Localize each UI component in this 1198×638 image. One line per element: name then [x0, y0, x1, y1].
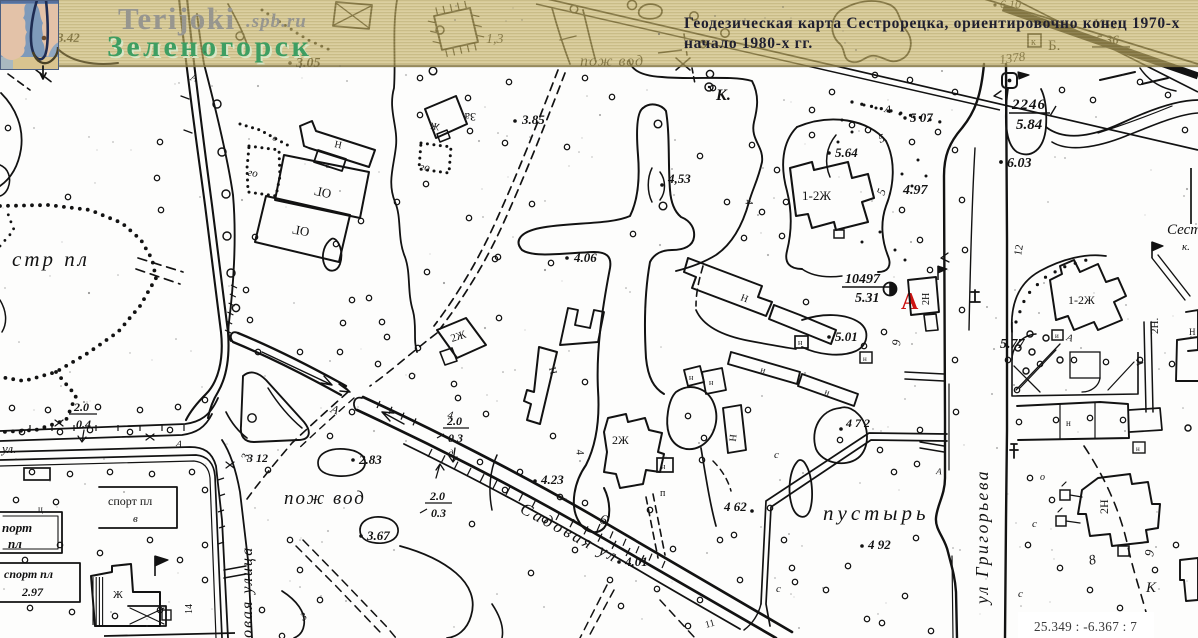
svg-text:2.0: 2.0	[446, 414, 462, 428]
svg-text:к: к	[326, 161, 330, 170]
svg-text:За: За	[464, 110, 476, 124]
svg-text:Зеленогорск: Зеленогорск	[107, 30, 312, 63]
svg-text:Н: Н	[1189, 327, 1196, 337]
svg-text:2.0: 2.0	[429, 489, 445, 503]
svg-text:4.97: 4.97	[902, 183, 929, 198]
svg-text:2Н: 2Н	[921, 293, 932, 305]
svg-text:н: н	[709, 378, 714, 387]
svg-text:н: н	[661, 462, 666, 471]
svg-text:5.77: 5.77	[1000, 337, 1026, 352]
svg-text:Сест: Сест	[1167, 222, 1198, 238]
svg-text:Геодезическая карта Сестрорецк: Геодезическая карта Сестрорецка, ориенти…	[684, 15, 1180, 32]
svg-text:н: н	[1066, 418, 1071, 428]
svg-text:ОГ: ОГ	[291, 222, 311, 240]
svg-text:1-2Ж: 1-2Ж	[802, 188, 831, 203]
svg-text:начало 1980-х гг.: начало 1980-х гг.	[684, 35, 813, 52]
svg-text:пустырь: пустырь	[823, 501, 930, 525]
svg-text:н: н	[863, 355, 867, 363]
svg-text:4 7 2: 4 7 2	[845, 416, 870, 430]
svg-text:4.06: 4.06	[573, 250, 597, 265]
svg-text:4.23: 4.23	[540, 472, 564, 487]
svg-text:и: и	[1055, 332, 1059, 340]
svg-text:2246: 2246	[1011, 97, 1046, 113]
svg-text:10497: 10497	[845, 272, 881, 287]
svg-text:пож вод: пож вод	[284, 488, 366, 509]
svg-text:4 92: 4 92	[867, 537, 891, 552]
svg-text:с: с	[774, 449, 779, 461]
svg-text:4,53: 4,53	[667, 171, 691, 186]
svg-text:Н: Н	[726, 434, 738, 442]
svg-text:2Н: 2Н	[1097, 499, 1111, 514]
svg-text:пл: пл	[8, 536, 22, 551]
svg-text:с: с	[1018, 588, 1023, 600]
svg-text:3.67: 3.67	[366, 528, 390, 543]
svg-text:н: н	[689, 373, 694, 382]
svg-text:5.64: 5.64	[835, 145, 858, 160]
svg-text:4 62: 4 62	[723, 499, 747, 514]
svg-text:Ж: Ж	[113, 589, 123, 601]
svg-text:н: н	[798, 338, 803, 347]
svg-text:довая улица: довая улица	[239, 546, 256, 638]
svg-text:Ж: Ж	[430, 119, 441, 131]
svg-text:п: п	[660, 488, 666, 499]
svg-text:ог: ог	[419, 162, 431, 175]
svg-text:спорт пл: спорт пл	[108, 494, 152, 508]
svg-text:1-2Ж: 1-2Ж	[1068, 293, 1095, 307]
svg-text:н: н	[1136, 445, 1140, 453]
svg-text:14: 14	[184, 604, 195, 614]
svg-text:с: с	[776, 583, 781, 595]
svg-text:5.84: 5.84	[1016, 117, 1043, 133]
svg-text:12: 12	[1012, 244, 1026, 257]
svg-text:0.4: 0.4	[76, 417, 91, 431]
svg-text:2Ж: 2Ж	[612, 433, 629, 447]
svg-text:стр пл: стр пл	[12, 247, 90, 271]
svg-text:порт: порт	[2, 520, 32, 535]
svg-text:в: в	[133, 513, 138, 525]
svg-text:ул Григорьева: ул Григорьева	[972, 469, 992, 606]
svg-text:ул.: ул.	[0, 441, 16, 456]
svg-text:с: с	[1032, 518, 1037, 530]
svg-text:К.: К.	[715, 87, 731, 104]
svg-text:9: 9	[889, 339, 903, 346]
svg-text:К: К	[1145, 580, 1157, 596]
svg-text:ц: ц	[38, 504, 43, 514]
svg-text:к.: к.	[1182, 241, 1190, 253]
svg-text:спорт пл: спорт пл	[4, 567, 53, 581]
svg-text:о: о	[1040, 472, 1045, 483]
svg-text:5.01: 5.01	[835, 329, 858, 344]
svg-text:2.97: 2.97	[21, 585, 44, 599]
svg-text:5.31: 5.31	[855, 291, 880, 306]
svg-text:0.3: 0.3	[431, 506, 446, 520]
svg-text:.spb.ru: .spb.ru	[246, 11, 307, 32]
svg-text:6.03: 6.03	[1007, 156, 1032, 171]
svg-text:25.349 : -6.367 : 7: 25.349 : -6.367 : 7	[1034, 619, 1137, 634]
